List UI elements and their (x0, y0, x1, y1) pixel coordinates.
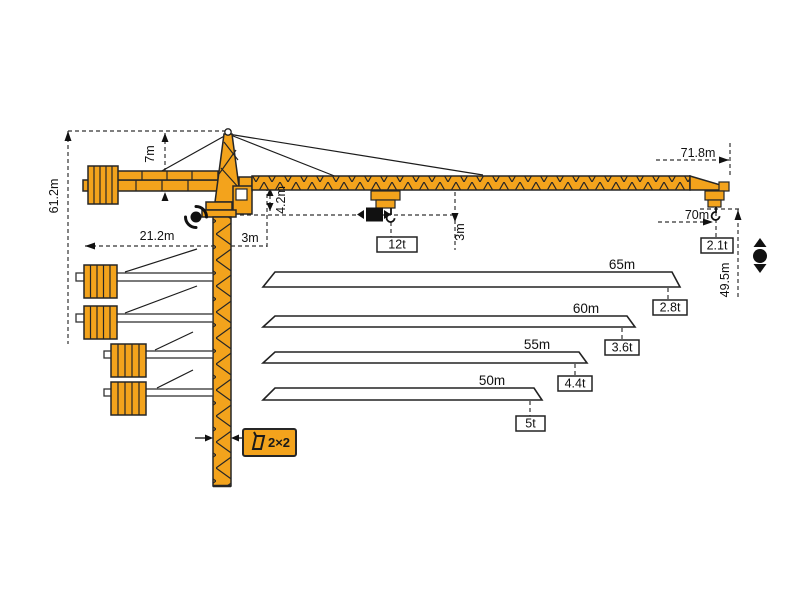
hook-radius-label: 70m (685, 208, 709, 222)
cab-window (236, 189, 247, 200)
hoist-icon (753, 238, 767, 273)
arrow-right-icon (205, 435, 213, 442)
trolley-offset-label: 3m (453, 223, 467, 240)
jib-lattice (252, 176, 690, 190)
crane-spec-diagram: 65m 2.8t 60m 3.6t 55m 4.4t 50m 5t (0, 0, 800, 600)
trolley-frame (705, 191, 724, 200)
counterweight-stack (88, 166, 118, 204)
tower-mast (213, 217, 231, 486)
capacity-label: 3.6t (612, 341, 633, 355)
rear-offset-label: 3m (241, 231, 258, 245)
jib-pendant-inner (228, 134, 337, 177)
counter-jib (83, 166, 218, 204)
jib-option-65m: 65m 2.8t (263, 257, 687, 315)
max-load-badge: 12t (377, 237, 417, 252)
mast-lattice (213, 217, 231, 486)
max-radius-label: 71.8m (681, 146, 716, 160)
capacity-label: 4.4t (565, 377, 586, 391)
counter-jib-pendant (160, 134, 228, 172)
under-jib-label: 4.2m (274, 186, 288, 214)
head-height-label: 7m (143, 145, 157, 162)
jib-option-shape (263, 352, 587, 363)
arrow-up-icon (65, 131, 72, 141)
max-load-label: 12t (388, 238, 406, 252)
jib-option-shape (263, 388, 542, 400)
mast-section-badge: 2×2 (195, 429, 296, 456)
counterweight-row (104, 332, 213, 377)
arrow-left-icon (231, 435, 239, 442)
arrow-down-icon (452, 213, 459, 222)
tip-load-badge: 2.1t (701, 238, 733, 253)
arrow-up-icon (162, 192, 169, 201)
hook-height-label: 49.5m (718, 263, 732, 298)
crane-diagram-canvas: 65m 2.8t 60m 3.6t 55m 4.4t 50m 5t (0, 0, 800, 600)
jib-pendant-outer (228, 134, 483, 175)
arrow-right-icon (719, 157, 729, 164)
jib-length-label: 50m (479, 373, 505, 388)
jib-option-55m: 55m 4.4t (263, 337, 592, 391)
trolley-frame (371, 191, 400, 200)
trolley-block (708, 200, 721, 207)
jib (252, 176, 729, 191)
counter-jib-radius-label: 21.2m (140, 229, 175, 243)
apex-pin (225, 129, 231, 135)
jib-length-label: 55m (524, 337, 550, 352)
jib-option-shape (263, 316, 635, 327)
jib-option-50m: 50m 5t (263, 373, 545, 431)
counterweight-options (76, 249, 213, 415)
total-height-label: 61.2m (47, 179, 61, 214)
mast-section-label: 2×2 (268, 435, 290, 450)
jib-tip-block (719, 182, 729, 191)
arrow-up-icon (162, 133, 169, 142)
jib-length-options: 65m 2.8t 60m 3.6t 55m 4.4t 50m 5t (263, 257, 687, 431)
jib-option-60m: 60m 3.6t (263, 301, 639, 355)
arrow-left-icon (85, 243, 95, 250)
jib-length-label: 60m (573, 301, 599, 316)
tip-load-label: 2.1t (707, 239, 728, 253)
capacity-label: 5t (525, 417, 536, 431)
capacity-label: 2.8t (660, 301, 681, 315)
counterweight-row (76, 249, 213, 298)
jib-length-label: 65m (609, 257, 635, 272)
trolley-block (376, 200, 395, 208)
jib-option-shape (263, 272, 680, 287)
arrow-up-icon (735, 210, 742, 220)
turntable-upper (206, 202, 232, 210)
